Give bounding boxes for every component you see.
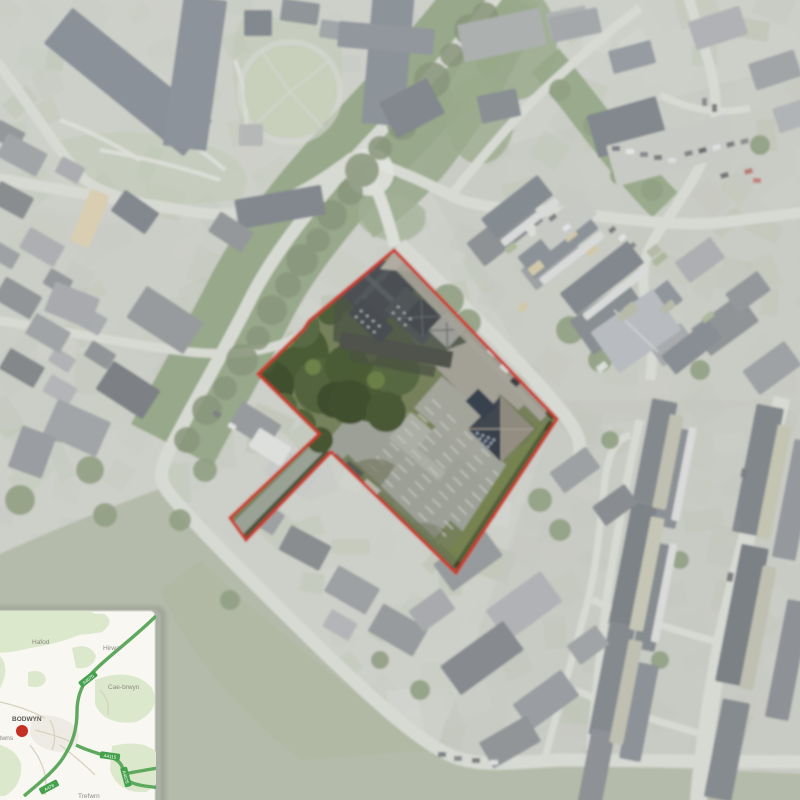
svg-text:Hirwal: Hirwal bbox=[103, 645, 122, 652]
svg-text:Cae-brwyn: Cae-brwyn bbox=[108, 684, 140, 691]
svg-text:BODWYN: BODWYN bbox=[12, 716, 42, 723]
svg-text:Trefwrn: Trefwrn bbox=[78, 793, 100, 800]
svg-text:dwns: dwns bbox=[0, 735, 14, 742]
svg-text:Hafod: Hafod bbox=[32, 639, 50, 646]
